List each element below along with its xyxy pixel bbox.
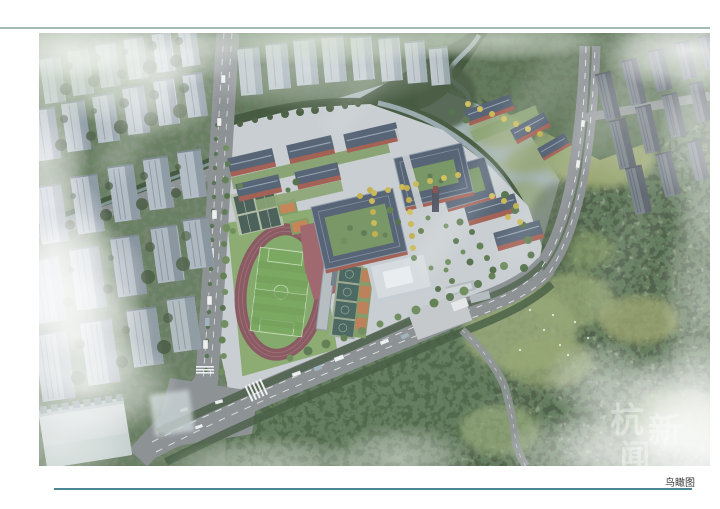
svg-text:杭: 杭 (610, 401, 644, 440)
svg-text:闻: 闻 (620, 440, 650, 473)
svg-text:鸟瞰图: 鸟瞰图 (665, 476, 695, 489)
svg-text:新: 新 (648, 412, 682, 450)
